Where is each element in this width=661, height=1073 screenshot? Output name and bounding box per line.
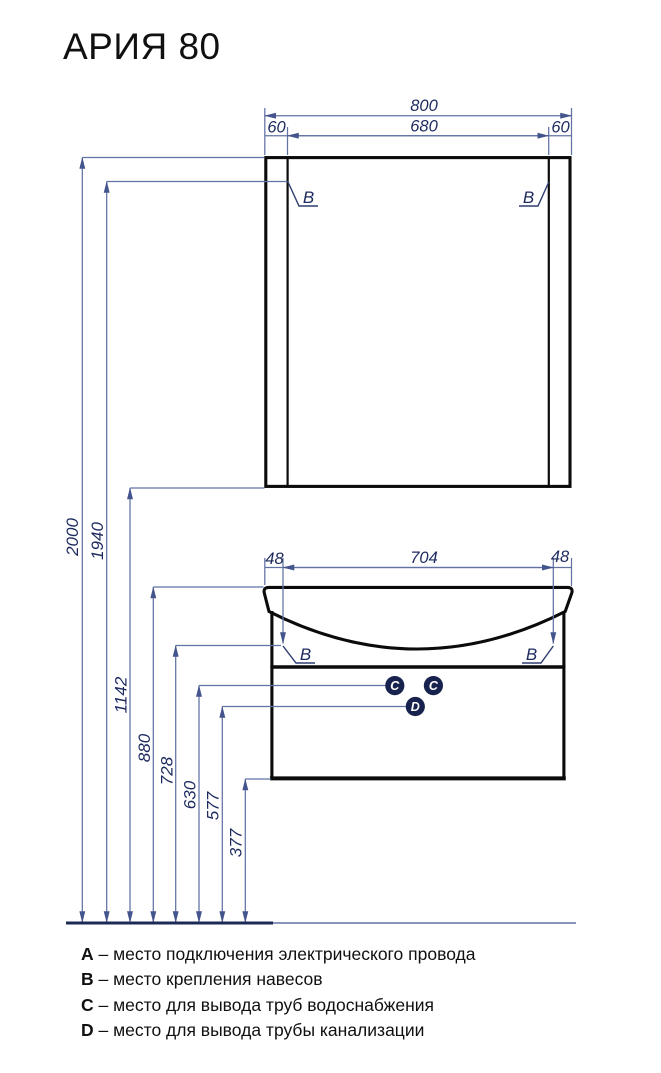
height-label-2000: 2000 [63,518,82,557]
legend-letter-d: D [81,1020,94,1040]
height-label-377: 377 [227,828,246,857]
legend-desc-b: – место крепления навесов [99,969,323,989]
legend-letter-b: B [81,969,94,989]
mount-label-mirror-left: B [303,188,314,207]
legend-letter-c: C [81,995,94,1015]
installation-scheme-page: АРИЯ 80 [0,0,661,1073]
height-label-630: 630 [181,780,200,809]
height-label-1142: 1142 [111,676,130,713]
legend-desc-a: – место подключения электрического прово… [99,944,476,964]
height-label-880: 880 [135,733,154,762]
vanity-unit-front-view [264,587,572,779]
legend-item-d: D – место для вывода трубы канализации [81,1020,475,1045]
height-label-728: 728 [158,756,177,785]
mount-label-cabinet-left: B [300,645,311,664]
water-outlet-letter-2: C [429,679,439,693]
dim-mirror-offset-right: 60 [551,119,570,137]
mount-label-mirror-right: B [523,188,534,207]
dim-mirror-offset-left: 60 [267,119,286,137]
mount-label-cabinet-right: B [526,645,537,664]
dim-mirror-inner: 680 [410,118,438,136]
legend: A – место подключения электрического про… [81,944,475,1045]
height-label-1940: 1940 [88,522,107,560]
legend-letter-a: A [81,944,94,964]
legend-item-b: B – место крепления навесов [81,969,475,994]
water-outlet-letter-1: C [390,679,400,693]
dim-cab-offset-left: 48 [265,550,284,568]
legend-desc-c: – место для вывода труб водоснабжения [99,995,435,1015]
height-label-577: 577 [204,791,223,820]
mirror-width-dimensions: 800 680 60 60 [265,97,572,155]
legend-desc-d: – место для вывода трубы канализации [99,1020,425,1040]
dim-cab-center: 704 [410,549,438,567]
legend-item-c: C – место для вывода труб водоснабжения [81,995,475,1020]
dim-mirror-total: 800 [410,97,438,115]
pipe-outlet-markers: C C D [385,676,443,716]
dim-cab-offset-right: 48 [551,548,570,566]
installation-drawing: 800 680 60 60 48 704 48 [0,0,661,1073]
legend-item-a: A – место подключения электрического про… [81,944,475,969]
drain-outlet-letter: D [411,700,420,714]
washbasin-outline [264,587,572,649]
